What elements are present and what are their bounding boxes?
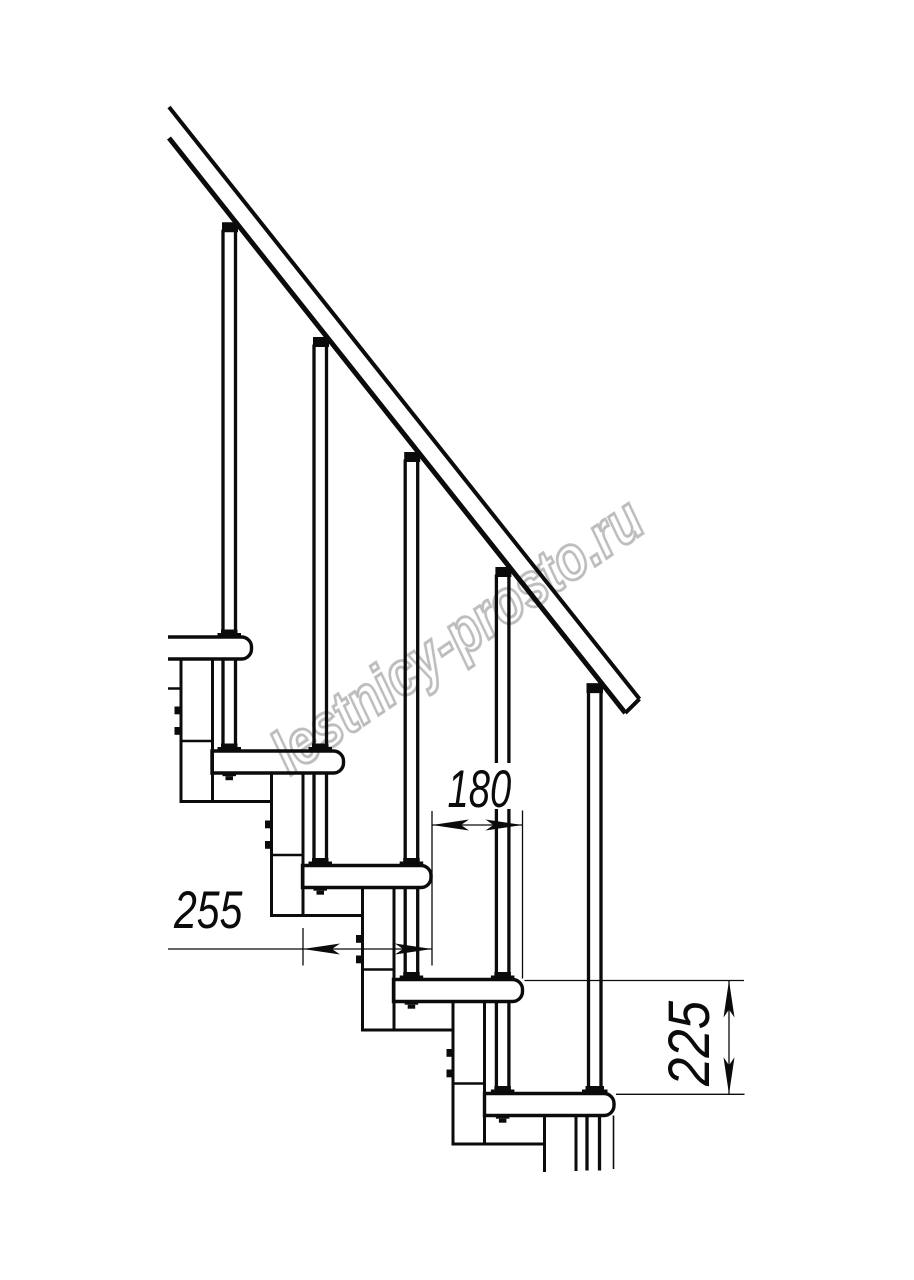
- svg-text:225: 225: [657, 1000, 722, 1087]
- svg-text:255: 255: [173, 881, 243, 940]
- svg-text:180: 180: [448, 759, 512, 819]
- svg-text:lestnicy-prosto.ru: lestnicy-prosto.ru: [259, 484, 657, 788]
